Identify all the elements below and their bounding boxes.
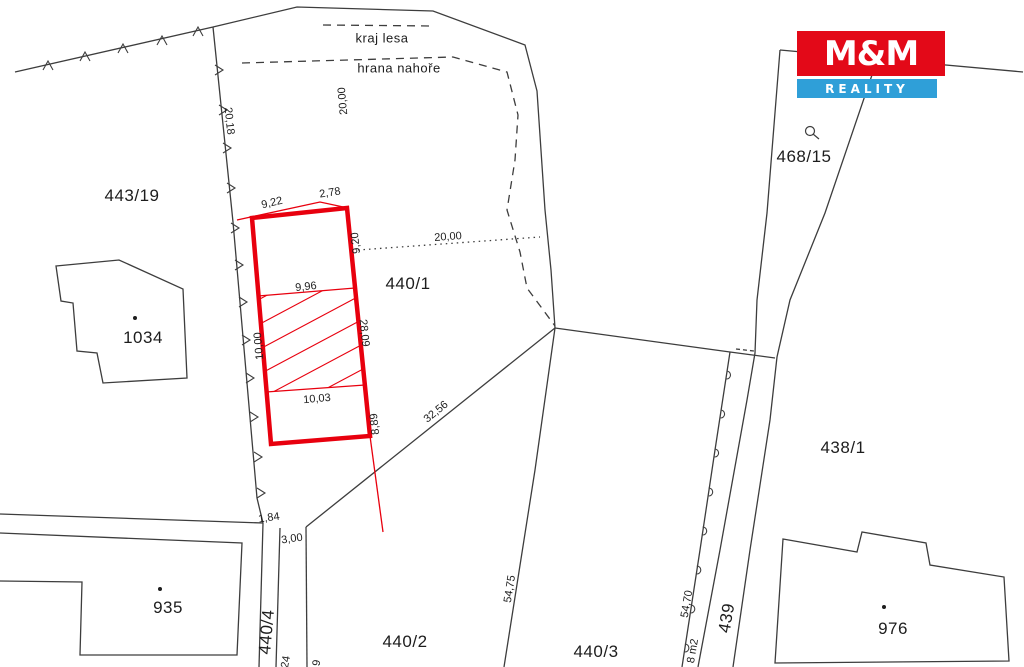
parcel-label-468-15: 468/15 [777,147,832,167]
measure-8-89: 8,89 [368,413,382,436]
parcel-label-440-2: 440/2 [382,632,427,652]
cadastral-map: 443/19 1034 935 440/4 440/2 440/3 440/1 … [0,0,1024,667]
logo-mm-text: M&M [797,31,945,76]
parcel-label-440-1: 440/1 [385,274,430,294]
fence-ticks [43,27,265,498]
tree-symbol [806,127,820,140]
logo-reality-text: REALITY [797,79,937,98]
parcel-label-440-3: 440/3 [573,642,618,662]
plot-hatching [258,243,365,450]
house-label-1034: 1034 [123,328,163,348]
house-label-976: 976 [878,619,908,639]
measure-20-00-vertical: 20,00 [336,87,350,115]
annotation-kraj-lesa: kraj lesa [356,31,409,46]
measure-10-03: 10,03 [303,392,331,406]
measure-10-00: 10,00 [252,332,266,360]
measure-9-96: 9,96 [295,280,318,294]
parcel-label-443-19: 443/19 [105,186,160,206]
house-dots [133,316,886,609]
measure-20-00-dotted: 20,00 [434,230,462,244]
mm-reality-logo: M&M REALITY [797,31,945,98]
house-label-935: 935 [153,598,183,618]
parcel-label-438-1: 438/1 [820,438,865,458]
measure-9-20: 9,20 [349,232,363,255]
measure-24-clipped: 24 [279,655,293,667]
annotation-hrana-nahore: hrana nahoře [357,61,440,76]
parcel-label-440-4: 440/4 [255,609,279,656]
